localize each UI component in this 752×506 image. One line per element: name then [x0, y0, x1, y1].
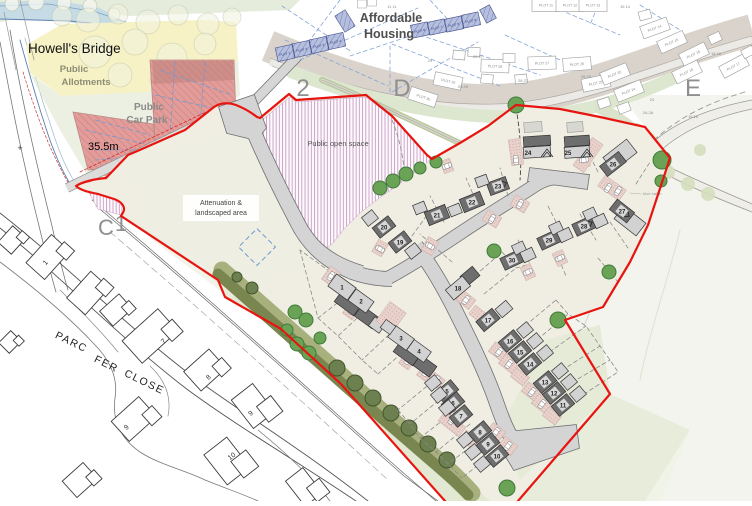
svg-text:16: 16 [507, 339, 514, 345]
svg-text:12: 12 [551, 391, 558, 397]
svg-text:26 25: 26 25 [581, 74, 592, 79]
svg-text:27: 27 [619, 209, 626, 215]
svg-text:14: 14 [527, 362, 534, 368]
svg-text:29: 29 [428, 58, 433, 63]
svg-text:13: 13 [542, 380, 549, 386]
svg-text:PLOT 11: PLOT 11 [539, 4, 553, 8]
svg-text:19: 19 [397, 240, 404, 246]
svg-text:16 16: 16 16 [688, 114, 699, 119]
svg-text:landscaped area: landscaped area [195, 210, 247, 217]
svg-text:Public: Public [60, 64, 89, 75]
svg-text:2: 2 [296, 75, 309, 102]
svg-text:2A 2A: 2A 2A [643, 110, 654, 115]
svg-text:20: 20 [381, 225, 388, 231]
svg-text:16 16: 16 16 [711, 51, 722, 56]
svg-text:15 14: 15 14 [620, 4, 631, 9]
svg-text:26: 26 [610, 162, 617, 168]
svg-text:PLOT 13: PLOT 13 [586, 4, 600, 8]
svg-text:C: C [98, 215, 114, 240]
svg-text:Housing: Housing [364, 27, 414, 41]
svg-text:21: 21 [434, 213, 441, 219]
svg-text:Public: Public [134, 102, 164, 113]
svg-text:D: D [393, 75, 410, 102]
svg-text:35.5m: 35.5m [88, 141, 119, 153]
svg-text:E: E [685, 75, 701, 102]
svg-text:Allotments: Allotments [61, 77, 110, 88]
svg-text:30: 30 [509, 258, 516, 264]
svg-text:11: 11 [560, 403, 567, 409]
svg-text:10: 10 [494, 454, 501, 460]
svg-text:Affordable: Affordable [360, 11, 423, 25]
svg-text:28 27: 28 27 [473, 54, 484, 59]
svg-text:17: 17 [485, 318, 492, 324]
svg-text:29: 29 [546, 238, 553, 244]
svg-text:PLOT 27: PLOT 27 [535, 61, 549, 65]
svg-text:25: 25 [565, 151, 572, 157]
svg-text:PLOT 12: PLOT 12 [563, 4, 577, 8]
svg-text:Howell's Bridge: Howell's Bridge [28, 41, 121, 56]
svg-text:Attenuation &: Attenuation & [200, 200, 242, 207]
svg-text:18: 18 [455, 286, 462, 292]
svg-text:23: 23 [495, 184, 502, 190]
svg-text:+: + [17, 143, 22, 153]
svg-text:Car Park: Car Park [126, 115, 168, 126]
svg-text:PLOT 28: PLOT 28 [488, 64, 502, 68]
svg-text:11 11: 11 11 [387, 4, 397, 9]
svg-text:24: 24 [525, 151, 532, 157]
svg-text:15: 15 [517, 350, 524, 356]
svg-text:28: 28 [581, 224, 588, 230]
svg-text:Public open space: Public open space [307, 139, 368, 148]
svg-text:22: 22 [469, 200, 476, 206]
svg-text:29-29: 29-29 [458, 84, 469, 89]
svg-text:28 27: 28 27 [518, 78, 529, 83]
svg-text:24: 24 [650, 97, 655, 102]
